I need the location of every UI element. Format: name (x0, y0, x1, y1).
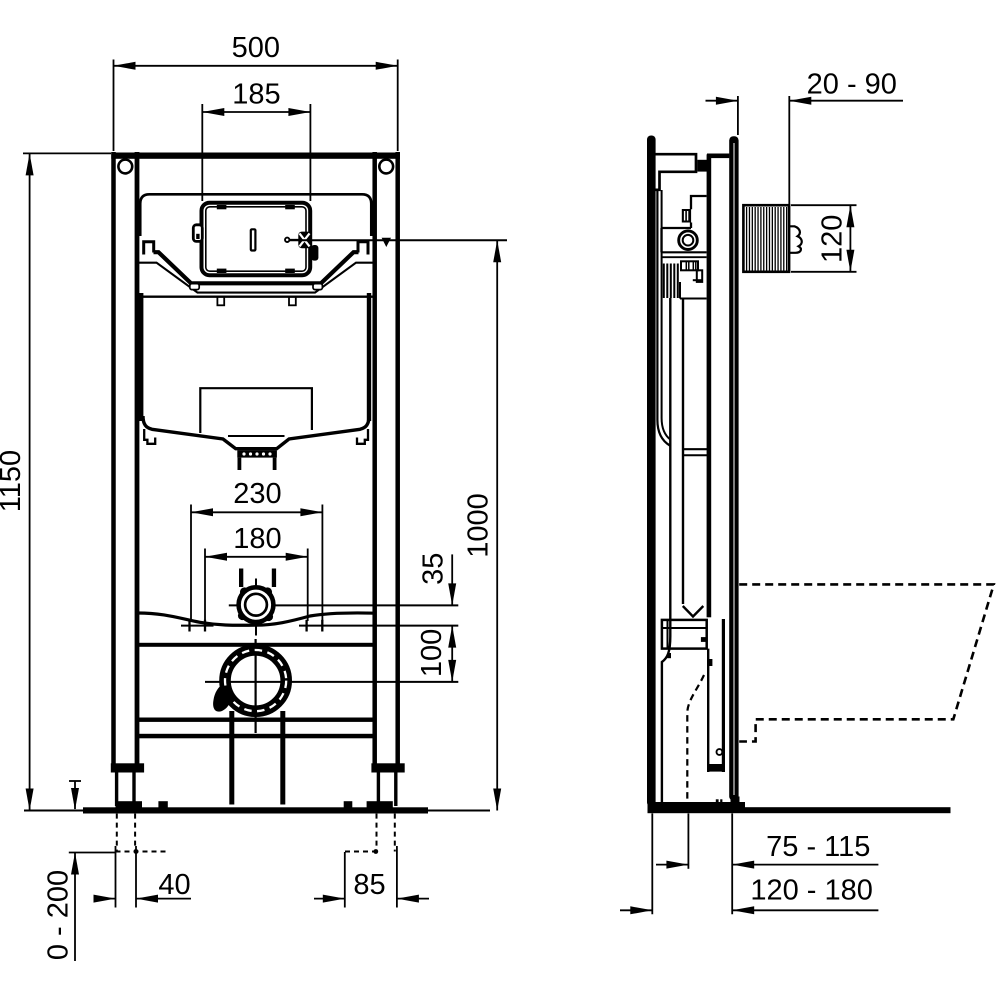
svg-text:185: 185 (232, 79, 280, 111)
svg-text:180: 180 (233, 523, 281, 555)
svg-text:120: 120 (816, 215, 848, 263)
svg-text:1000: 1000 (463, 493, 495, 558)
svg-text:120 - 180: 120 - 180 (750, 875, 873, 907)
svg-text:75 - 115: 75 - 115 (766, 831, 870, 863)
svg-text:100: 100 (416, 629, 448, 677)
svg-text:85: 85 (353, 869, 385, 901)
svg-text:1150: 1150 (0, 450, 27, 512)
svg-text:20 - 90: 20 - 90 (807, 69, 897, 101)
svg-text:500: 500 (232, 32, 280, 64)
svg-text:40: 40 (158, 869, 190, 901)
svg-text:35: 35 (418, 553, 450, 585)
svg-text:230: 230 (233, 478, 281, 510)
svg-text:0 - 200: 0 - 200 (43, 870, 75, 960)
